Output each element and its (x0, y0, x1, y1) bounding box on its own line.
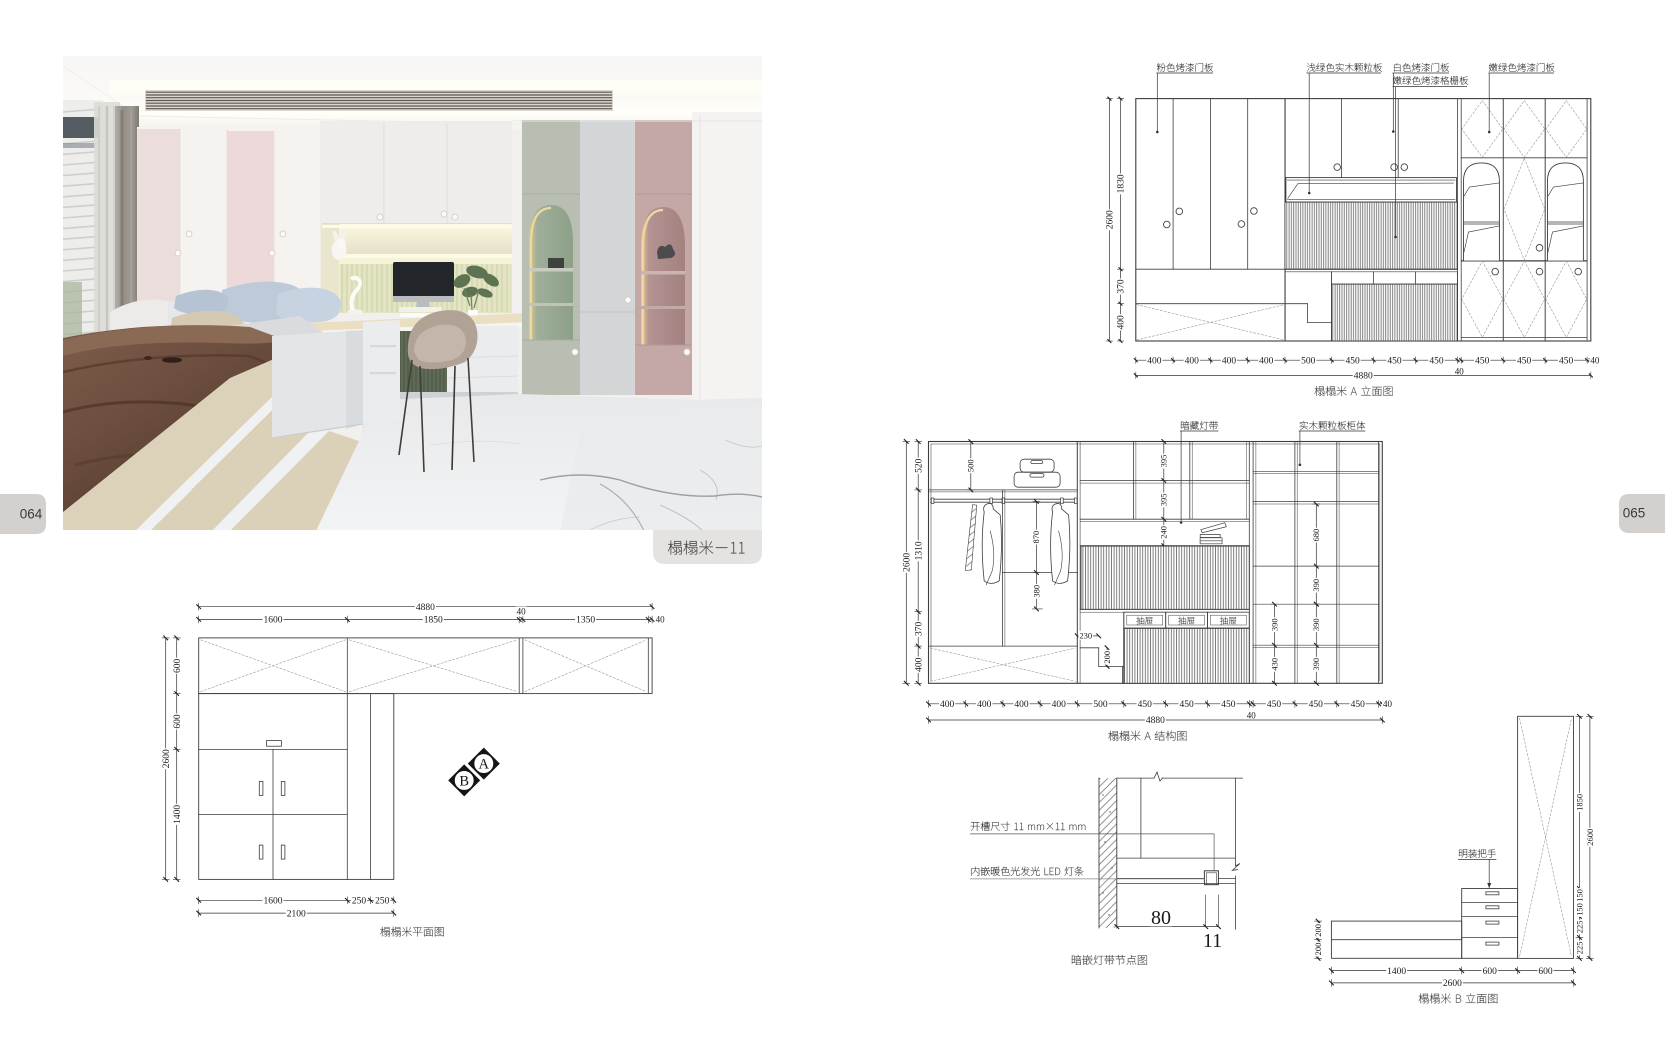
svg-text:400: 400 (1185, 356, 1200, 366)
svg-text:150: 150 (1574, 903, 1584, 916)
svg-text:1400: 1400 (1387, 967, 1406, 977)
svg-text:600: 600 (1538, 967, 1553, 977)
svg-text:600: 600 (1483, 967, 1498, 977)
svg-text:40: 40 (1590, 355, 1600, 365)
svg-text:80: 80 (1151, 907, 1171, 929)
svg-text:390: 390 (1311, 658, 1321, 671)
svg-text:240: 240 (1159, 526, 1169, 539)
svg-text:500: 500 (966, 459, 976, 472)
svg-text:1600: 1600 (264, 616, 283, 626)
svg-text:500: 500 (1301, 356, 1316, 366)
svg-text:600: 600 (173, 714, 183, 729)
svg-text:390: 390 (1311, 579, 1321, 592)
svg-text:400: 400 (1052, 700, 1067, 710)
svg-text:395: 395 (1159, 455, 1169, 468)
svg-text:2600: 2600 (1106, 210, 1116, 229)
svg-text:400: 400 (1222, 356, 1237, 366)
svg-text:390: 390 (1269, 618, 1279, 631)
svg-text:225: 225 (1574, 942, 1584, 955)
svg-text:1310: 1310 (914, 541, 924, 560)
svg-text:450: 450 (1221, 700, 1236, 710)
svg-text:450: 450 (1138, 700, 1153, 710)
svg-text:400: 400 (940, 700, 955, 710)
svg-text:40: 40 (517, 607, 527, 617)
svg-text:200: 200 (1313, 924, 1323, 937)
svg-text:870: 870 (1031, 531, 1041, 544)
svg-text:200: 200 (1102, 651, 1112, 664)
svg-text:225: 225 (1574, 921, 1584, 934)
svg-text:450: 450 (1179, 700, 1194, 710)
svg-text:450: 450 (1517, 356, 1532, 366)
svg-text:390: 390 (1311, 618, 1321, 631)
svg-text:450: 450 (1559, 356, 1574, 366)
svg-text:680: 680 (1311, 529, 1321, 542)
svg-text:064: 064 (20, 507, 43, 522)
svg-text:250: 250 (375, 897, 390, 907)
svg-text:400: 400 (977, 700, 992, 710)
svg-text:2600: 2600 (1443, 979, 1462, 989)
svg-text:450: 450 (1429, 356, 1444, 366)
svg-text:380: 380 (1031, 585, 1041, 598)
svg-text:A: A (479, 757, 490, 773)
svg-text:4880: 4880 (1146, 716, 1165, 726)
svg-text:2600: 2600 (162, 749, 172, 768)
svg-text:395: 395 (1159, 494, 1169, 507)
svg-text:B: B (459, 773, 469, 789)
svg-text:40: 40 (1247, 711, 1257, 721)
svg-text:150: 150 (1574, 889, 1584, 902)
svg-text:450: 450 (1387, 356, 1402, 366)
svg-text:450: 450 (1475, 356, 1490, 366)
svg-text:40: 40 (1383, 699, 1393, 709)
svg-text:520: 520 (914, 458, 924, 473)
svg-text:430: 430 (1269, 658, 1279, 671)
svg-text:370: 370 (1117, 279, 1127, 294)
svg-text:250: 250 (352, 897, 367, 907)
svg-text:065: 065 (1623, 506, 1646, 521)
svg-text:400: 400 (1259, 356, 1274, 366)
svg-text:1830: 1830 (1117, 174, 1127, 193)
svg-text:1400: 1400 (173, 805, 183, 824)
svg-text:450: 450 (1267, 700, 1282, 710)
svg-text:450: 450 (1309, 700, 1324, 710)
svg-text:400: 400 (1147, 356, 1162, 366)
svg-text:450: 450 (1345, 356, 1360, 366)
svg-text:4880: 4880 (1354, 372, 1373, 382)
svg-text:2600: 2600 (1585, 829, 1595, 846)
svg-text:230: 230 (1079, 630, 1092, 640)
svg-text:450: 450 (1351, 700, 1366, 710)
svg-text:4880: 4880 (416, 603, 435, 613)
svg-text:1850: 1850 (424, 616, 443, 626)
svg-text:1350: 1350 (576, 616, 595, 626)
svg-text:400: 400 (1014, 700, 1029, 710)
svg-text:1600: 1600 (264, 897, 283, 907)
svg-text:200: 200 (1313, 943, 1323, 956)
svg-text:1850: 1850 (1574, 794, 1584, 811)
svg-text:500: 500 (1093, 700, 1108, 710)
svg-text:370: 370 (914, 622, 924, 637)
svg-text:2600: 2600 (902, 553, 912, 572)
svg-text:2100: 2100 (287, 909, 306, 919)
svg-text:400: 400 (1117, 315, 1127, 330)
svg-text:400: 400 (914, 657, 924, 672)
svg-text:40: 40 (656, 615, 666, 625)
svg-text:600: 600 (173, 658, 183, 673)
svg-text:11: 11 (1203, 930, 1222, 952)
